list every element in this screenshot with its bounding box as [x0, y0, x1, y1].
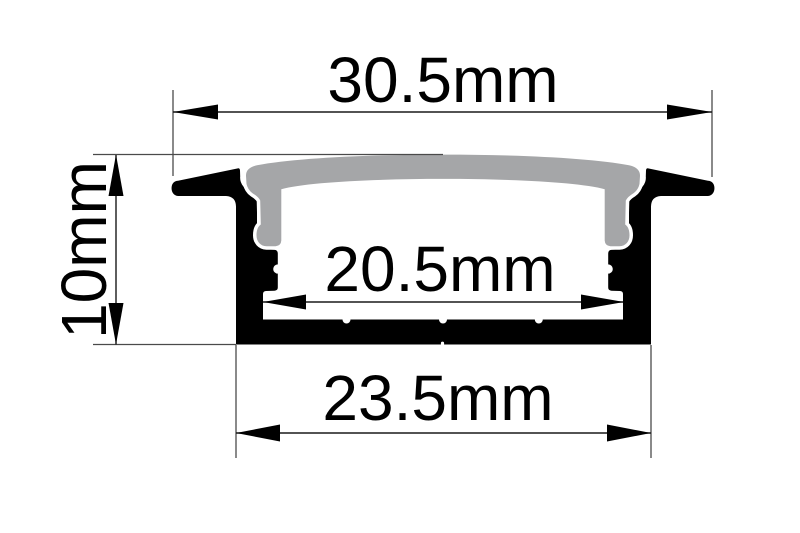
svg-text:10mm: 10mm — [48, 161, 120, 339]
svg-text:20.5mm: 20.5mm — [324, 233, 555, 305]
svg-text:30.5mm: 30.5mm — [327, 44, 558, 116]
svg-text:23.5mm: 23.5mm — [322, 362, 553, 434]
